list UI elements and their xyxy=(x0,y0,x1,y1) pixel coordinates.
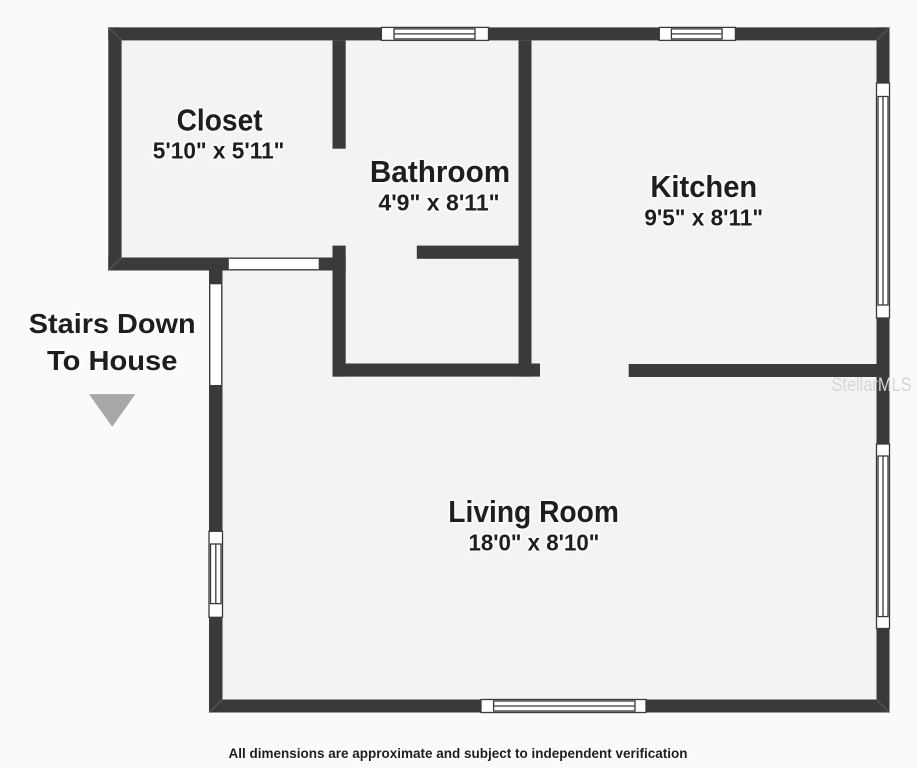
svg-text:Closet: Closet xyxy=(177,102,263,137)
svg-text:Stairs Down: Stairs Down xyxy=(29,308,196,339)
svg-text:All dimensions are approximate: All dimensions are approximate and subje… xyxy=(229,745,688,761)
svg-text:StellarMLS: StellarMLS xyxy=(832,375,912,396)
svg-text:18'0" x 8'10": 18'0" x 8'10" xyxy=(468,530,599,556)
svg-text:4'9" x 8'11": 4'9" x 8'11" xyxy=(378,190,499,216)
svg-text:To House: To House xyxy=(47,345,177,376)
svg-text:Kitchen: Kitchen xyxy=(650,169,757,204)
svg-text:Bathroom: Bathroom xyxy=(370,154,510,189)
svg-text:Living Room: Living Room xyxy=(448,494,619,529)
svg-text:5'10" x 5'11": 5'10" x 5'11" xyxy=(153,137,285,163)
svg-text:9'5" x 8'11": 9'5" x 8'11" xyxy=(644,205,763,231)
